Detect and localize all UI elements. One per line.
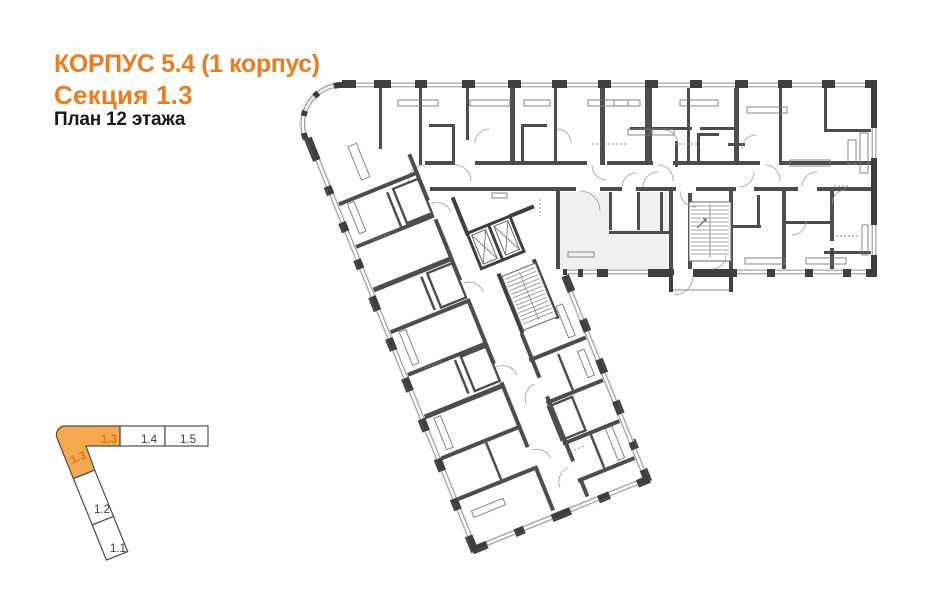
svg-text:1.5: 1.5	[180, 434, 196, 446]
svg-text:1.3: 1.3	[101, 434, 117, 446]
svg-text:1.2: 1.2	[94, 504, 110, 516]
svg-text:1.1: 1.1	[110, 543, 126, 555]
svg-text:1.4: 1.4	[141, 434, 158, 446]
